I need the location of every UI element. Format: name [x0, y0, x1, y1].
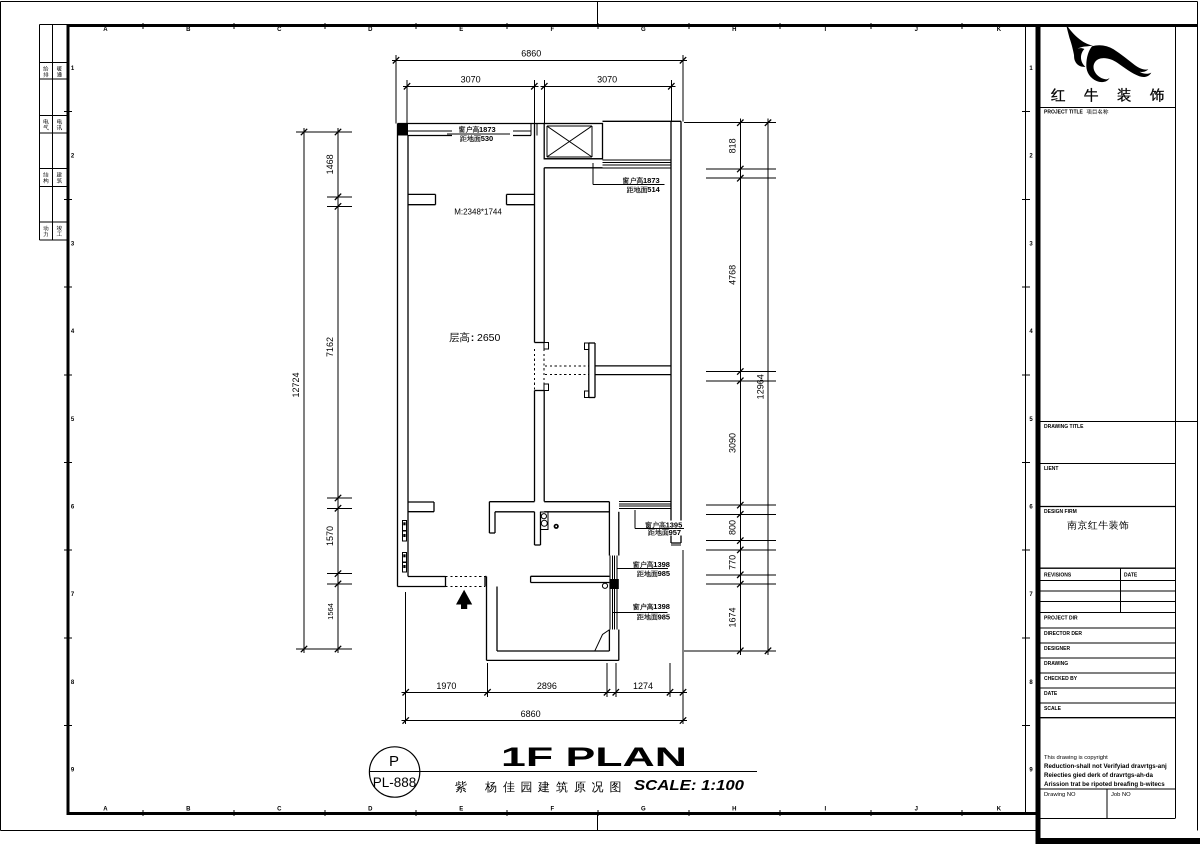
svg-text:Job NO: Job NO	[1111, 792, 1131, 798]
svg-text:6860: 6860	[521, 49, 541, 59]
svg-text:3070: 3070	[461, 75, 481, 85]
svg-text:DRAWING TITLE: DRAWING TITLE	[1044, 424, 1084, 430]
svg-text:F: F	[550, 27, 554, 33]
svg-text:1274: 1274	[633, 681, 653, 691]
svg-text:DRAWING: DRAWING	[1044, 661, 1068, 667]
svg-text:J: J	[915, 27, 918, 33]
svg-text:3090: 3090	[728, 433, 738, 453]
svg-text:D: D	[368, 807, 373, 813]
svg-text:This drawing is copyright: This drawing is copyright	[1044, 755, 1108, 761]
svg-text:1970: 1970	[436, 681, 456, 691]
svg-text:957: 957	[669, 528, 682, 537]
svg-text:C: C	[277, 27, 282, 33]
svg-text:514: 514	[647, 185, 660, 194]
svg-text:C: C	[277, 807, 282, 813]
svg-text:DATE: DATE	[1124, 573, 1138, 579]
svg-text:P: P	[389, 753, 399, 770]
svg-text:J: J	[915, 807, 918, 813]
svg-text:800: 800	[728, 520, 738, 535]
svg-text:1873: 1873	[479, 125, 496, 134]
svg-text:12964: 12964	[756, 374, 766, 399]
svg-text:DESIGN FIRM: DESIGN FIRM	[1044, 509, 1077, 515]
svg-text:1468: 1468	[325, 154, 335, 174]
svg-text:1674: 1674	[728, 607, 738, 627]
svg-text:E: E	[459, 27, 463, 33]
svg-text:Drawing NO: Drawing NO	[1044, 792, 1076, 798]
svg-text:H: H	[732, 27, 736, 33]
svg-text:B: B	[186, 807, 191, 813]
svg-text:1F PLAN: 1F PLAN	[501, 742, 687, 772]
svg-text:A: A	[103, 27, 108, 33]
svg-text:1873: 1873	[643, 176, 660, 185]
svg-text:DATE: DATE	[1044, 691, 1058, 697]
svg-text:Reiecties gied derk of dravrtg: Reiecties gied derk of dravrtgs-ah-da	[1044, 772, 1154, 779]
svg-text:530: 530	[481, 134, 494, 143]
svg-text:LIENT: LIENT	[1044, 466, 1058, 472]
svg-text:SCALE: SCALE	[1044, 706, 1062, 712]
svg-text:1398: 1398	[653, 560, 670, 569]
svg-text:1398: 1398	[653, 602, 670, 611]
svg-text:DESIGNER: DESIGNER	[1044, 646, 1071, 652]
svg-text:1564: 1564	[326, 603, 335, 620]
svg-text:G: G	[641, 27, 646, 33]
svg-text:Reduction-shall not Verifyiad: Reduction-shall not Verifyiad dravrtgs-a…	[1044, 763, 1167, 770]
svg-text:M:2348*1744: M:2348*1744	[454, 208, 502, 217]
svg-text:4768: 4768	[728, 265, 738, 285]
svg-text:770: 770	[728, 555, 738, 570]
svg-text:Arission trat be ripoted breaf: Arission trat be ripoted breafing b-wite…	[1044, 781, 1165, 788]
svg-text:B: B	[186, 27, 191, 33]
svg-text:K: K	[997, 807, 1002, 813]
svg-text:7162: 7162	[325, 337, 335, 357]
svg-text:12724: 12724	[291, 372, 301, 397]
svg-text:REVISIONS: REVISIONS	[1044, 573, 1072, 579]
svg-text:818: 818	[728, 138, 738, 153]
svg-text:3070: 3070	[597, 75, 617, 85]
svg-text:985: 985	[658, 612, 671, 621]
svg-text:A: A	[103, 807, 108, 813]
svg-text:DIRECTOR DER: DIRECTOR DER	[1044, 631, 1082, 637]
svg-text:D: D	[368, 27, 373, 33]
svg-text:K: K	[997, 27, 1002, 33]
svg-text:G: G	[641, 807, 646, 813]
svg-text:6860: 6860	[521, 709, 541, 719]
svg-text:2896: 2896	[537, 681, 557, 691]
svg-text:H: H	[732, 807, 736, 813]
svg-text:985: 985	[658, 569, 671, 578]
svg-text:F: F	[550, 807, 554, 813]
svg-text:1570: 1570	[325, 526, 335, 546]
svg-text:PROJECT DIR: PROJECT DIR	[1044, 615, 1078, 621]
svg-text::: :	[471, 332, 475, 344]
svg-text:CHECKED BY: CHECKED BY	[1044, 676, 1078, 682]
svg-text:E: E	[459, 807, 463, 813]
svg-text:2650: 2650	[477, 332, 501, 344]
svg-text:PL-888: PL-888	[373, 775, 417, 790]
svg-text:SCALE: 1:100: SCALE: 1:100	[634, 777, 745, 794]
svg-text:PROJECT TITLE: PROJECT TITLE	[1044, 110, 1084, 116]
